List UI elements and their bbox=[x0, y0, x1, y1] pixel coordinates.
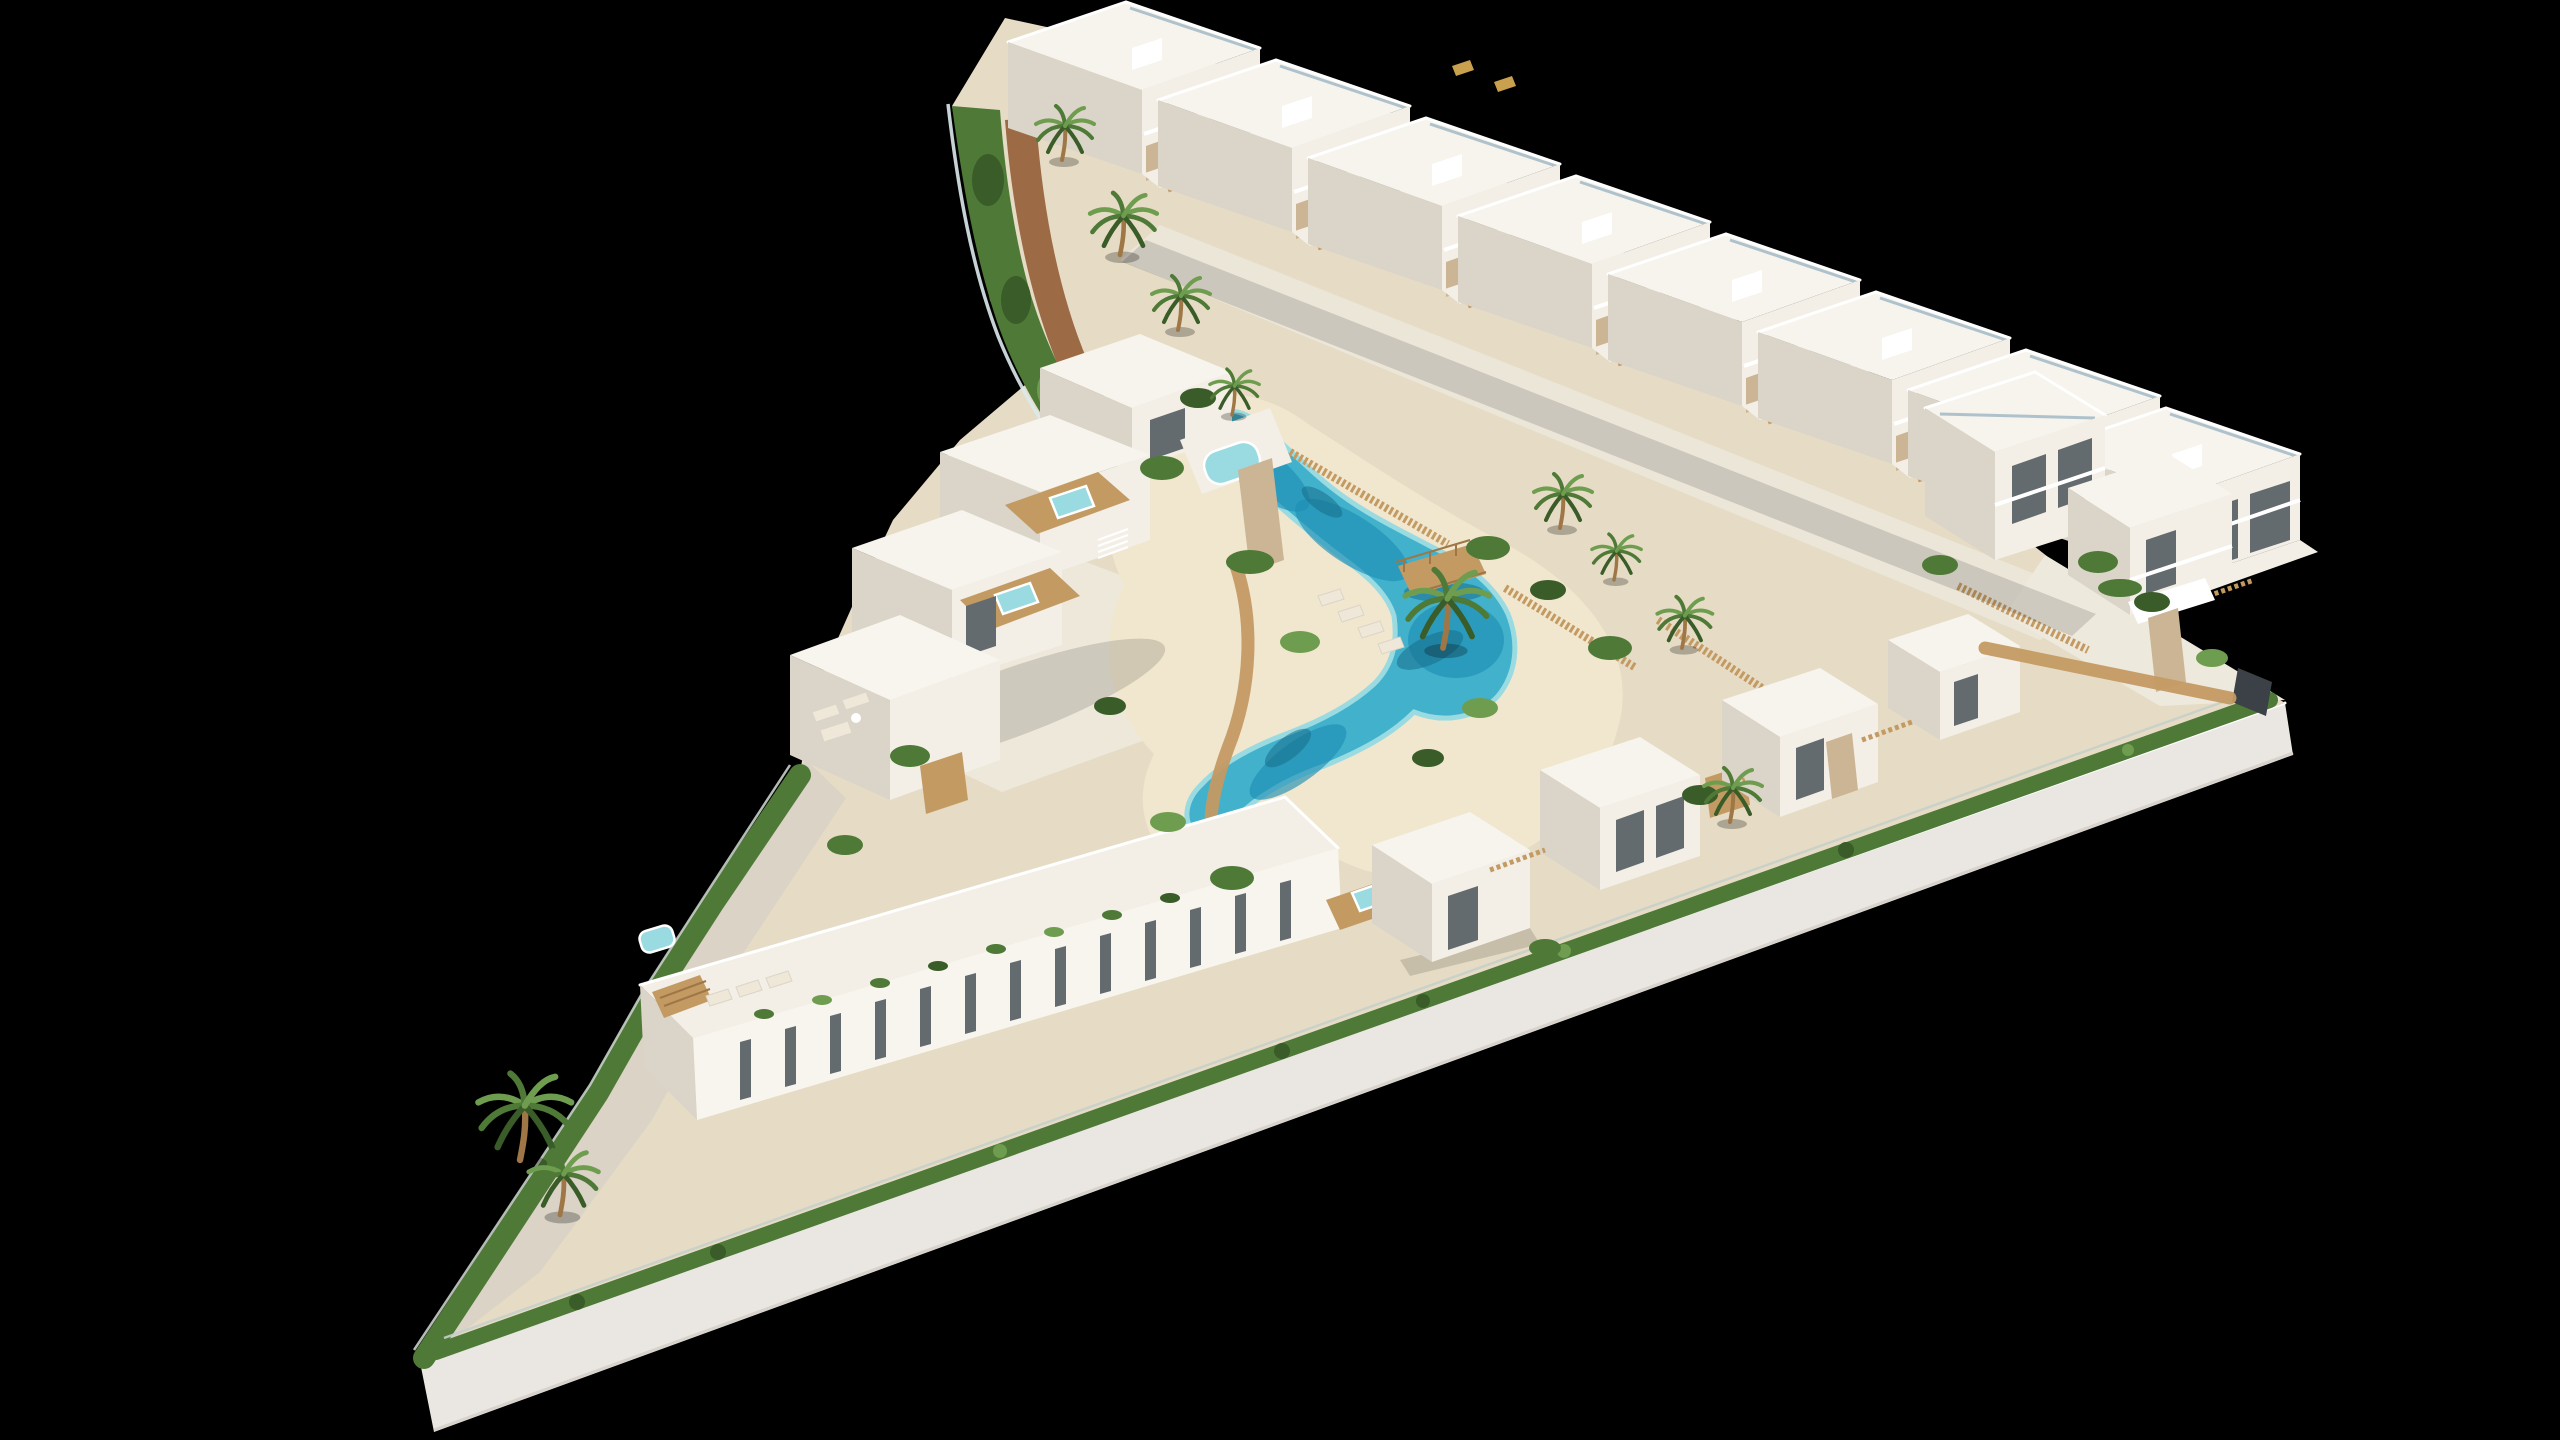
aerial-render bbox=[0, 0, 2560, 1440]
entrance-planter bbox=[2098, 579, 2142, 597]
render-viewport bbox=[0, 0, 2560, 1440]
